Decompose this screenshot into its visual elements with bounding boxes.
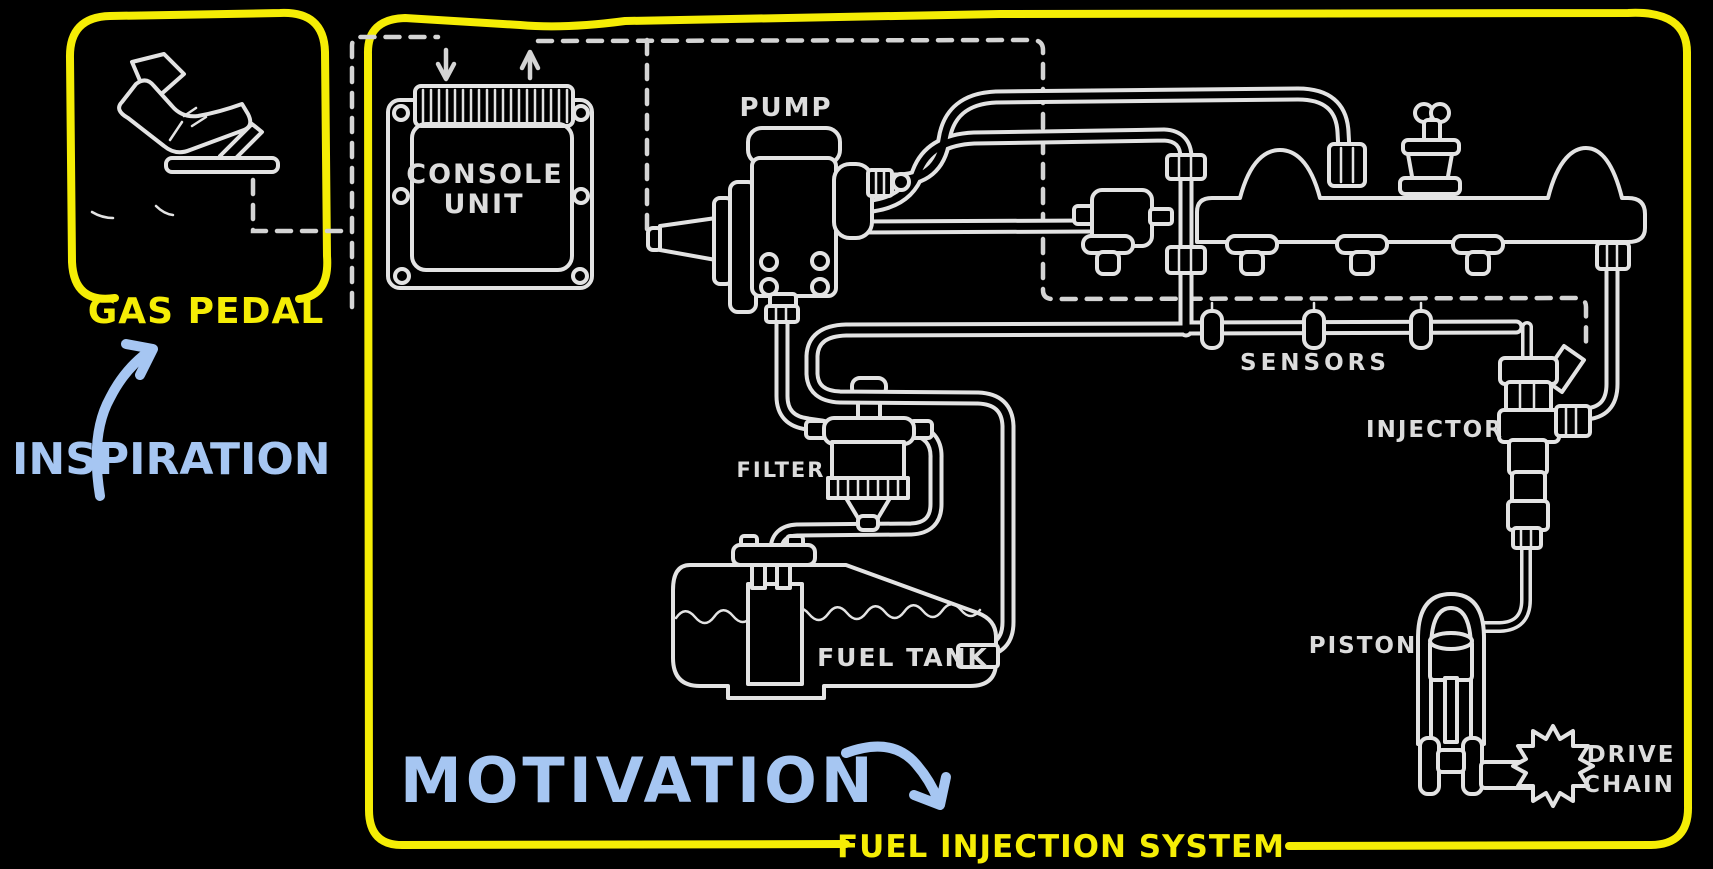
filter-label: FILTER xyxy=(737,458,826,482)
pump-label: PUMP xyxy=(739,93,832,123)
fuel-tank-label: FUEL TANK xyxy=(817,643,989,672)
console-unit-label-2: UNIT xyxy=(444,189,525,220)
piston-label: PISTON xyxy=(1309,633,1417,659)
motivation-label: MOTIVATION xyxy=(400,744,877,817)
diagram-canvas: CONSOLE UNIT PUMP xyxy=(0,0,1713,869)
drive-chain-label-1: DRIVE xyxy=(1587,742,1676,768)
injector-label: INJECTOR xyxy=(1366,417,1504,443)
fuel-injection-system-label: FUEL INJECTION SYSTEM xyxy=(837,829,1285,865)
console-unit-label-1: CONSOLE xyxy=(406,159,563,190)
rail-inlet-fitting xyxy=(1329,144,1365,186)
pedal-base xyxy=(166,158,278,172)
inspiration-label: INSPIRATION xyxy=(12,434,331,485)
console-unit: CONSOLE UNIT xyxy=(388,86,592,288)
injector-inlet-fitting xyxy=(1556,406,1590,436)
rail-outlet-fitting xyxy=(1597,243,1629,269)
gas-pedal-label: GAS PEDAL xyxy=(88,291,325,332)
sketch-diagram: CONSOLE UNIT PUMP xyxy=(0,0,1713,869)
sensors-label: SENSORS xyxy=(1240,350,1390,376)
drive-chain-label-2: CHAIN xyxy=(1583,772,1675,798)
